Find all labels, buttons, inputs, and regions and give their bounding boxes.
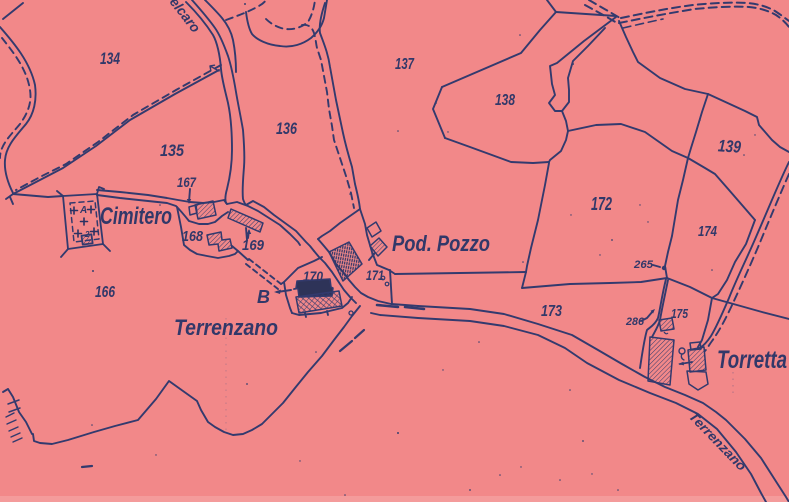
svg-text:139: 139: [717, 136, 742, 157]
svg-text:173: 173: [541, 303, 562, 320]
svg-text:286: 286: [625, 316, 645, 328]
svg-text:134: 134: [100, 49, 120, 68]
svg-text:175: 175: [671, 307, 689, 321]
svg-text:166: 166: [95, 284, 115, 301]
svg-text:169: 169: [242, 237, 265, 254]
svg-text:Pod. Pozzo: Pod. Pozzo: [392, 231, 490, 256]
svg-text:172: 172: [591, 194, 612, 214]
svg-text:135: 135: [160, 141, 184, 160]
svg-text:2: 2: [84, 230, 90, 239]
svg-text:167: 167: [177, 174, 197, 190]
svg-text:A: A: [79, 205, 87, 216]
svg-text:168: 168: [182, 228, 204, 245]
svg-text:170: 170: [303, 269, 323, 284]
svg-text:B: B: [257, 287, 270, 307]
svg-text:136: 136: [276, 119, 297, 138]
svg-text:265: 265: [633, 259, 654, 271]
svg-text:174: 174: [698, 223, 717, 240]
svg-text:Terrenzano: Terrenzano: [174, 315, 278, 340]
svg-text:171: 171: [366, 268, 384, 283]
svg-text:138: 138: [495, 92, 515, 109]
svg-text:Torretta: Torretta: [717, 346, 787, 374]
svg-text:Cimitero: Cimitero: [100, 203, 172, 230]
svg-text:137: 137: [395, 56, 415, 73]
